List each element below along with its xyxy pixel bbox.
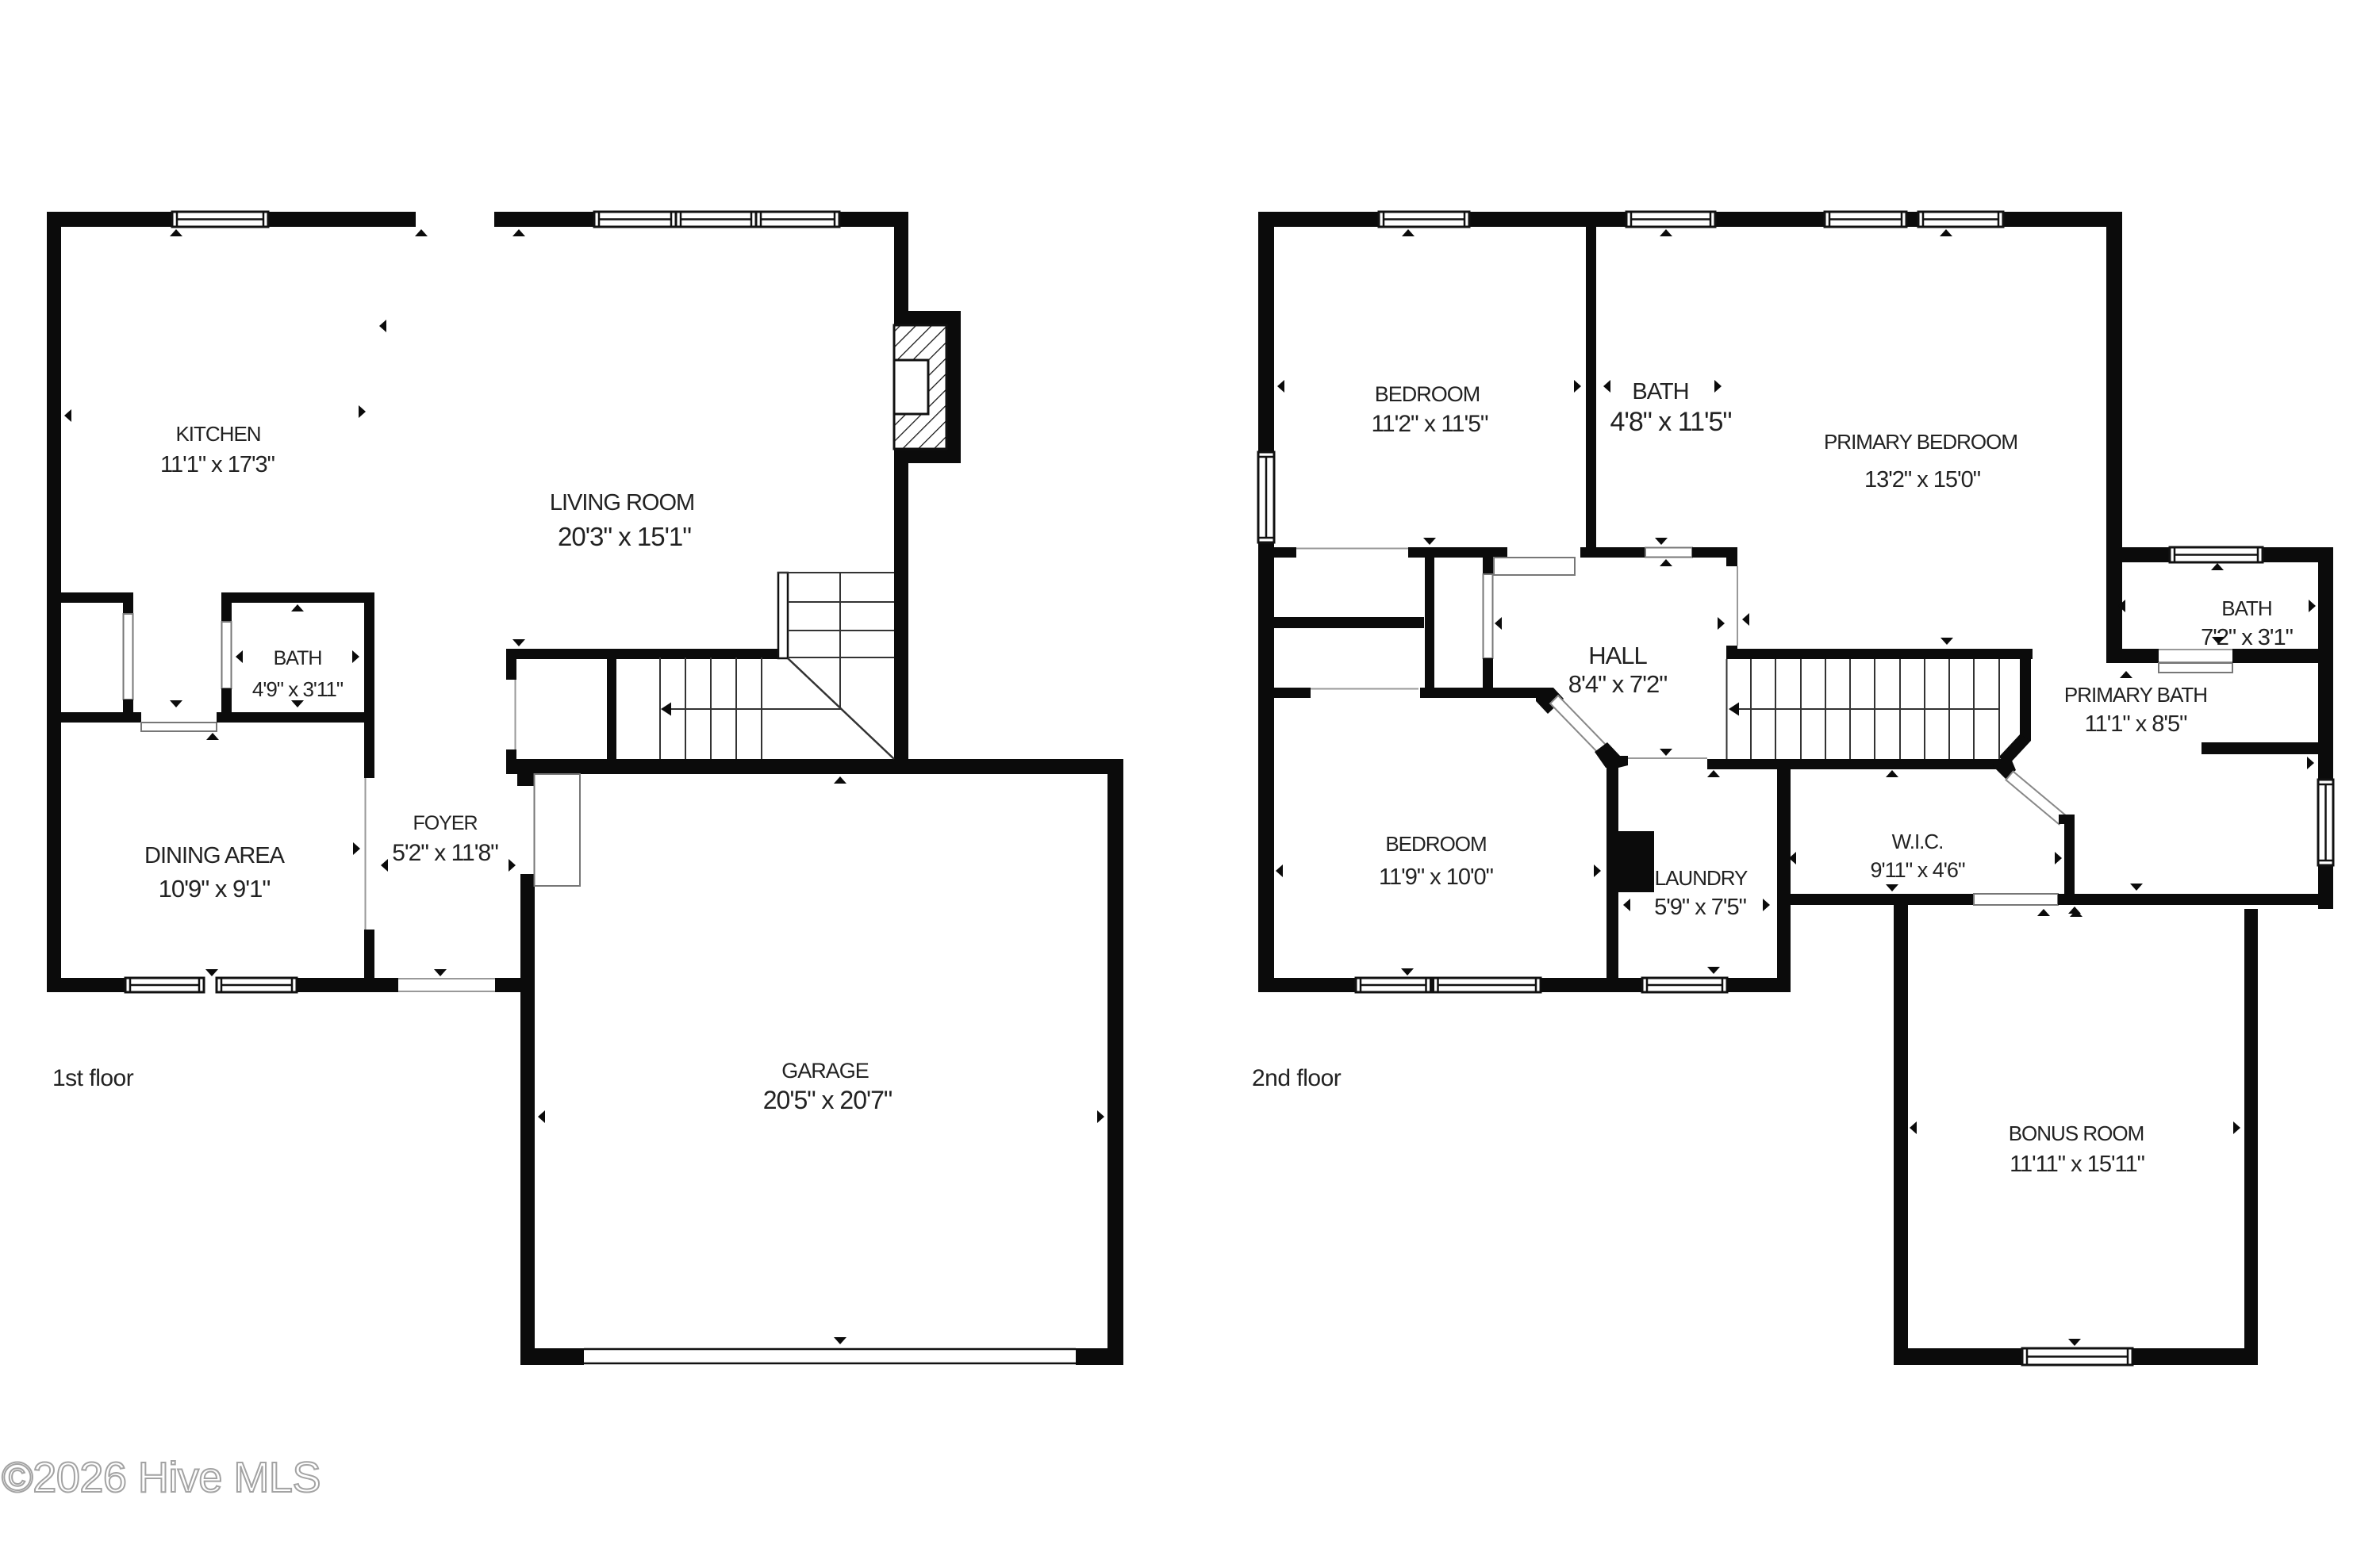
svg-text:10'9" x 9'1": 10'9" x 9'1" <box>159 875 271 903</box>
svg-text:BATH: BATH <box>2221 596 2271 620</box>
svg-text:1st floor: 1st floor <box>52 1065 134 1091</box>
svg-text:5'9" x 7'5": 5'9" x 7'5" <box>1654 895 1746 920</box>
svg-text:GARAGE: GARAGE <box>781 1059 869 1083</box>
svg-text:11'11" x 15'11": 11'11" x 15'11" <box>2010 1152 2145 1177</box>
svg-text:PRIMARY BATH: PRIMARY BATH <box>2064 683 2207 707</box>
svg-text:BEDROOM: BEDROOM <box>1385 832 1486 856</box>
svg-text:W.I.C.: W.I.C. <box>1892 830 1944 853</box>
svg-text:PRIMARY BEDROOM: PRIMARY BEDROOM <box>1824 430 2017 454</box>
svg-text:13'2" x 15'0": 13'2" x 15'0" <box>1864 467 1981 493</box>
svg-text:2nd floor: 2nd floor <box>1252 1065 1342 1091</box>
svg-text:FOYER: FOYER <box>413 812 477 834</box>
svg-text:20'5" x 20'7": 20'5" x 20'7" <box>763 1086 892 1114</box>
svg-text:BONUS ROOM: BONUS ROOM <box>2009 1121 2144 1145</box>
svg-text:BATH: BATH <box>1632 379 1688 404</box>
svg-text:LAUNDRY: LAUNDRY <box>1655 866 1748 890</box>
svg-text:HALL: HALL <box>1588 642 1647 669</box>
svg-text:11'1" x 8'5": 11'1" x 8'5" <box>2085 711 2187 737</box>
svg-text:11'2" x 11'5": 11'2" x 11'5" <box>1371 411 1487 437</box>
svg-text:11'9" x 10'0": 11'9" x 10'0" <box>1379 864 1494 890</box>
svg-text:DINING AREA: DINING AREA <box>144 843 286 868</box>
svg-text:20'3" x 15'1": 20'3" x 15'1" <box>558 522 691 551</box>
svg-text:4'9" x 3'11": 4'9" x 3'11" <box>252 677 344 701</box>
svg-text:11'1" x 17'3": 11'1" x 17'3" <box>160 452 275 477</box>
svg-text:9'11" x 4'6": 9'11" x 4'6" <box>1870 858 1964 882</box>
svg-text:4'8" x 11'5": 4'8" x 11'5" <box>1610 407 1731 437</box>
svg-text:BATH: BATH <box>274 647 322 669</box>
svg-text:BEDROOM: BEDROOM <box>1375 382 1480 406</box>
svg-text:KITCHEN: KITCHEN <box>175 422 260 446</box>
svg-text:LIVING ROOM: LIVING ROOM <box>550 490 694 516</box>
svg-text:5'2" x 11'8": 5'2" x 11'8" <box>392 840 498 866</box>
svg-text:©2026 Hive MLS: ©2026 Hive MLS <box>2 1454 321 1501</box>
svg-text:8'4" x 7'2": 8'4" x 7'2" <box>1568 670 1668 698</box>
